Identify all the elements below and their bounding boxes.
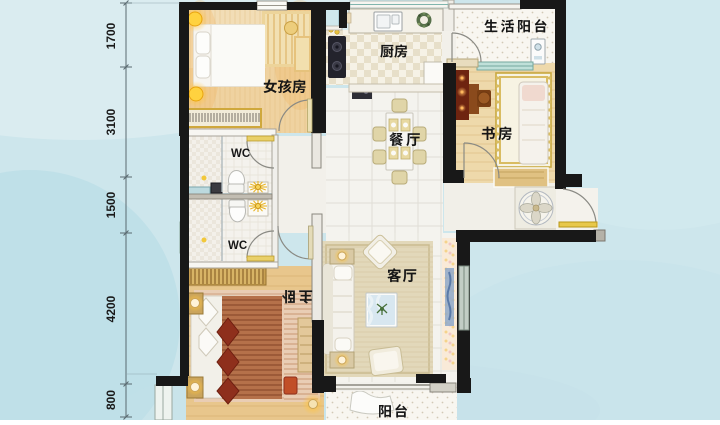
svg-text:WC: WC <box>231 148 250 160</box>
svg-text:1500: 1500 <box>104 191 118 218</box>
svg-text:4200: 4200 <box>104 295 118 322</box>
svg-text:800: 800 <box>104 390 118 410</box>
svg-text:3100: 3100 <box>104 108 118 135</box>
svg-text:1700: 1700 <box>104 22 118 49</box>
svg-text:WC: WC <box>228 240 247 252</box>
